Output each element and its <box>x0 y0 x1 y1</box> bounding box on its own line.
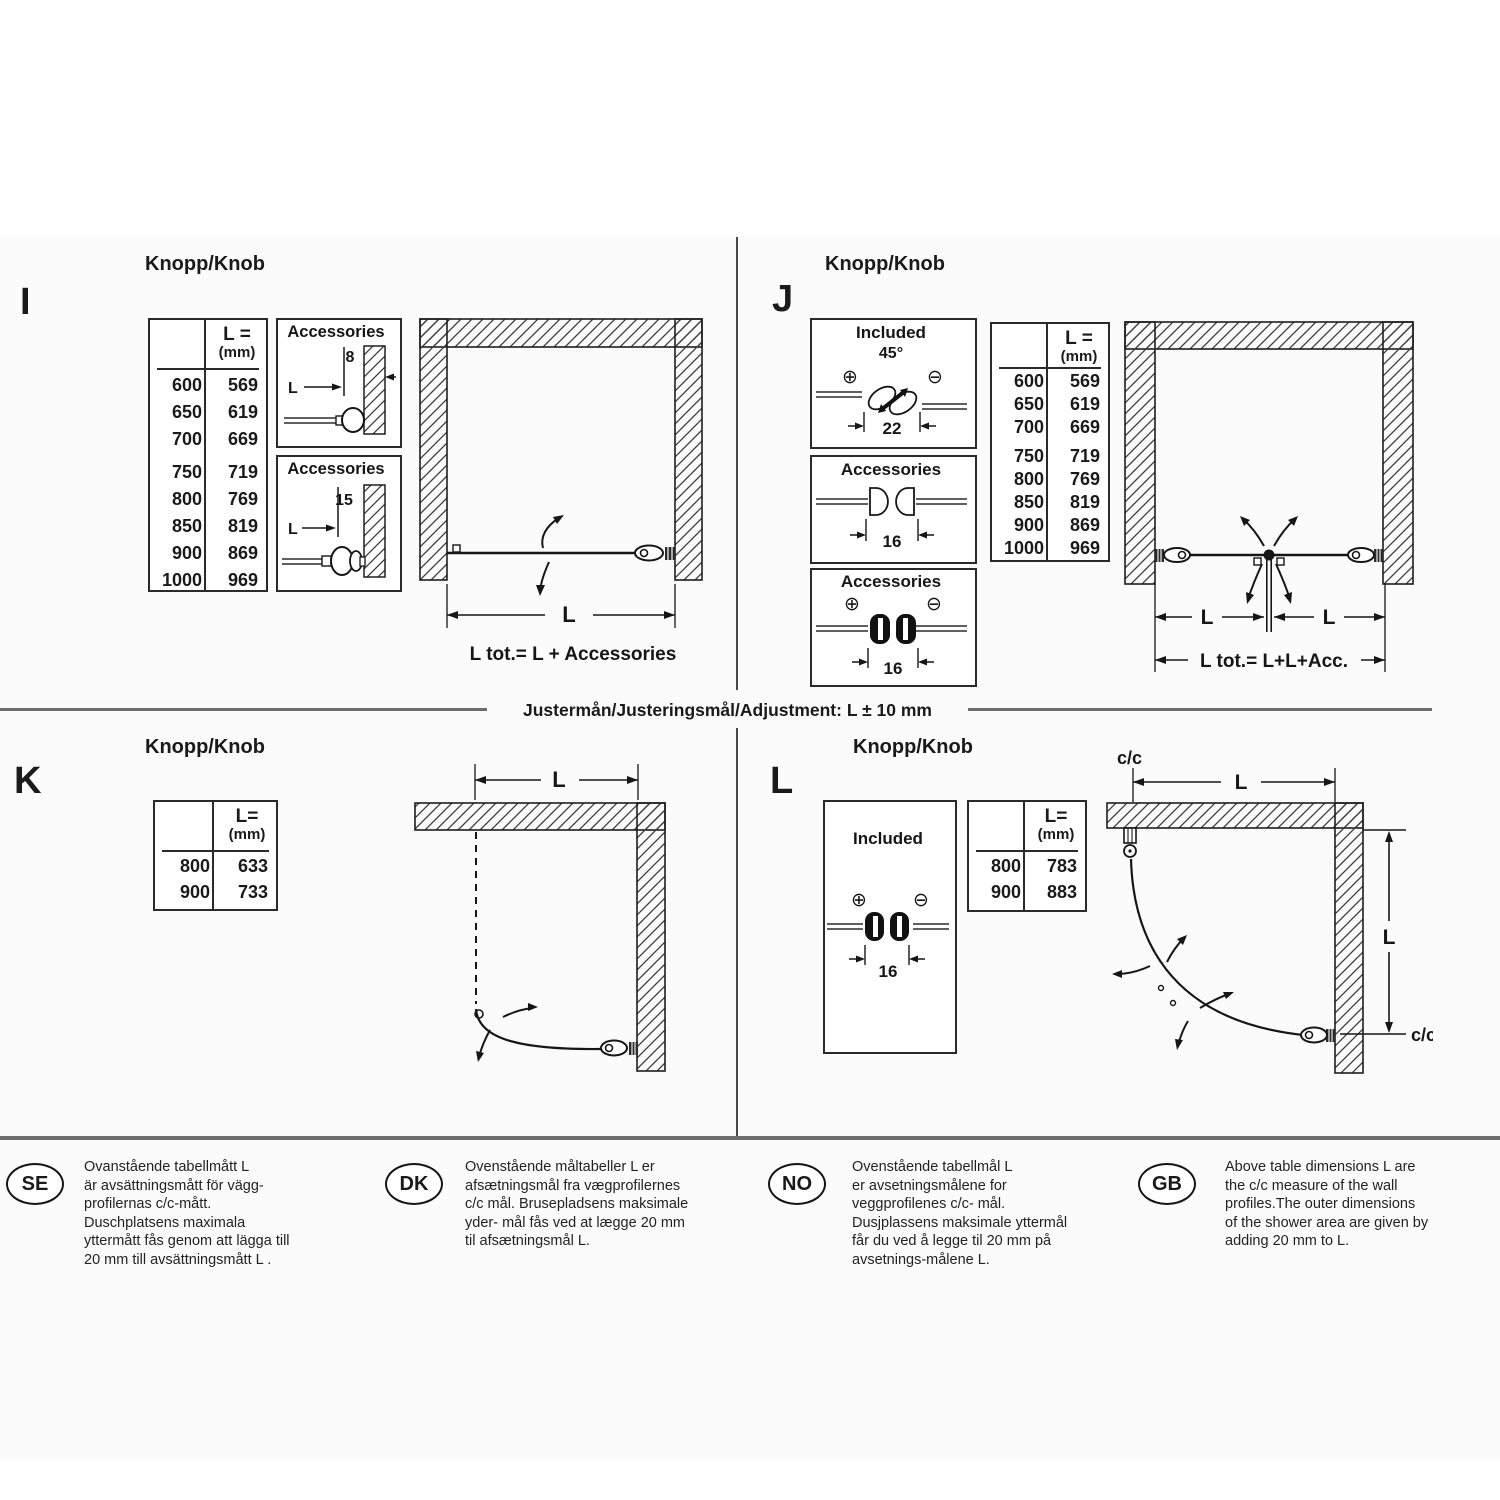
size-value: 750 <box>992 446 1049 467</box>
plus-icon: ⊕ <box>842 366 858 388</box>
note-dk: Ovenstående måltabeller L er afsætningsm… <box>465 1158 765 1251</box>
panel-joint <box>1171 1001 1176 1006</box>
note-gb: Above table dimensions L are the c/c mea… <box>1225 1158 1500 1251</box>
cc-label-bottom: c/c <box>1411 1025 1433 1045</box>
size-value: 1000 <box>992 538 1049 559</box>
section-j-heading: Knopp/Knob <box>825 253 945 276</box>
header-mm: (mm) <box>1027 827 1085 842</box>
accessory-box-knob-8: Accessories 8 L <box>276 318 402 448</box>
section-l-heading: Knopp/Knob <box>853 736 973 759</box>
size-value: 700 <box>992 417 1049 438</box>
accessory-seal-drawing: Accessories 16 <box>812 457 971 558</box>
section-l-letter: L <box>770 762 793 800</box>
door-stop <box>1254 558 1261 565</box>
minus-icon: ⊖ <box>926 593 942 615</box>
adjustment-rule-right <box>968 708 1432 711</box>
accessory-drawing-15: Accessories 15 L <box>278 457 396 586</box>
l-value: 769 <box>1049 469 1108 490</box>
magnet-slit <box>897 916 902 937</box>
note-line: Ovanstående tabellmått L <box>84 1158 384 1177</box>
arrowhead <box>1324 778 1335 786</box>
note-line: profiles.The outer dimensions <box>1225 1195 1500 1214</box>
seal-profile <box>896 488 914 515</box>
table-row: 1000969 <box>150 567 266 594</box>
size-value: 900 <box>992 515 1049 536</box>
door-stop <box>1277 558 1284 565</box>
arrowhead <box>664 611 675 619</box>
l-value: 819 <box>1049 492 1108 513</box>
adjustment-label: Justermån/Justeringsmål/Adjustment: L ± … <box>495 700 960 721</box>
section-i-heading: Knopp/Knob <box>145 253 265 276</box>
included-magnet-drawing: Included ⊕ ⊖ 16 <box>825 802 951 1048</box>
badge-code: GB <box>1152 1173 1182 1196</box>
size-value: 800 <box>155 856 215 877</box>
size-table-l: L= (mm) 800783 900883 <box>967 800 1087 912</box>
door-glass-curved <box>476 1009 601 1049</box>
size-value: 700 <box>150 429 207 450</box>
note-line: 20 mm till avsättningsmått L . <box>84 1251 384 1270</box>
note-line: c/c mål. Brusepladsens maksimale <box>465 1195 765 1214</box>
glass-edges <box>827 924 949 929</box>
wall-hatched <box>1125 322 1413 584</box>
diagram-double-door-niche: L L L tot.= L+L+Acc. <box>1118 300 1423 680</box>
arrowhead <box>1374 656 1385 664</box>
note-line: yder- mål fås ved at lægge 20 mm <box>465 1214 765 1233</box>
dim-label: L <box>1201 606 1214 629</box>
note-line: Ovenstående tabellmål L <box>852 1158 1152 1177</box>
l-value: 869 <box>207 543 266 564</box>
box-title: Included <box>856 323 926 342</box>
header-l: L= <box>1027 807 1085 827</box>
arrowhead <box>1223 992 1234 999</box>
arrowhead <box>909 956 918 963</box>
l-value: 783 <box>1026 856 1085 877</box>
note-line: veggprofilenes c/c- mål. <box>852 1195 1152 1214</box>
plus-icon: ⊕ <box>844 593 860 615</box>
table-body: 600569 650619 700669 750719 800769 85081… <box>150 372 266 594</box>
arrowhead <box>856 956 865 963</box>
dim-label: L <box>288 380 298 397</box>
arrowhead <box>1253 613 1264 621</box>
total-formula: L tot.= L + Accessories <box>470 644 677 665</box>
arrowhead <box>1155 656 1166 664</box>
l-value: 619 <box>207 402 266 423</box>
diagram-quadrant-door-corner: c/c L <box>1093 738 1433 1083</box>
diagram-single-door-niche: L L tot.= L + Accessories <box>403 300 718 670</box>
glass-edges <box>816 626 967 631</box>
size-value: 800 <box>969 856 1026 877</box>
l-value: 669 <box>1049 417 1108 438</box>
arrowhead <box>476 1051 484 1062</box>
magnet-slit <box>878 618 883 640</box>
plus-icon: ⊕ <box>851 889 867 911</box>
knob-icon <box>635 546 675 561</box>
language-badge-gb: GB <box>1138 1163 1196 1205</box>
table-row: 700669 <box>992 416 1108 439</box>
arrowhead <box>332 384 342 391</box>
width-value: 16 <box>884 659 903 678</box>
arrowhead <box>475 776 486 784</box>
box-title: Accessories <box>841 460 941 479</box>
knob-icon <box>1155 548 1190 562</box>
knob-icon <box>601 1041 638 1056</box>
table-row: 650619 <box>150 399 266 426</box>
note-line: får du ved å legge til 20 mm på <box>852 1232 1152 1251</box>
table-header: L= (mm) <box>218 807 276 842</box>
box-title: Included <box>853 829 923 848</box>
table-row: 900869 <box>150 540 266 567</box>
arrowhead <box>1284 592 1292 604</box>
table-header-rule <box>999 367 1101 369</box>
door-stop <box>453 545 460 552</box>
wall-hatched <box>420 319 702 580</box>
note-no: Ovenstående tabellmål L er avsetningsmål… <box>852 1158 1152 1269</box>
header-mm: (mm) <box>218 827 276 842</box>
arrowhead <box>326 525 336 532</box>
note-line: är avsättningsmått för vägg- <box>84 1177 384 1196</box>
table-row: 800783 <box>969 853 1085 879</box>
size-value: 850 <box>992 492 1049 513</box>
size-value: 900 <box>969 882 1026 903</box>
note-line: adding 20 mm to L. <box>1225 1232 1500 1251</box>
accessory-drawing-8: Accessories 8 L <box>278 320 396 442</box>
arrowhead <box>627 776 638 784</box>
note-se: Ovanstående tabellmått L är avsättningsm… <box>84 1158 384 1269</box>
size-value: 900 <box>150 543 207 564</box>
note-line: afsætningsmål fra vægprofilernes <box>465 1177 765 1196</box>
header-l: L = <box>208 325 266 345</box>
language-badge-no: NO <box>768 1163 826 1205</box>
table-row: 650619 <box>992 393 1108 416</box>
arrowhead <box>447 611 458 619</box>
l-value: 669 <box>207 429 266 450</box>
dim-label: L <box>288 521 298 538</box>
section-k-letter: K <box>14 762 41 800</box>
l-value: 769 <box>207 489 266 510</box>
wall-hatched <box>364 346 385 434</box>
table-header: L = (mm) <box>208 325 266 360</box>
size-table-j: L = (mm) 600569 650619 700669 750719 800… <box>990 322 1110 562</box>
size-value: 650 <box>150 402 207 423</box>
cc-label-top: c/c <box>1117 748 1142 768</box>
l-value: 819 <box>207 516 266 537</box>
note-line: yttermått fås genom att lägga till <box>84 1232 384 1251</box>
section-i-letter: I <box>20 283 31 321</box>
accessory-seal-box: Accessories 16 <box>810 455 977 564</box>
badge-code: DK <box>400 1173 429 1196</box>
arrowhead <box>1155 613 1166 621</box>
magnet-slit <box>873 916 878 937</box>
box-title: Accessories <box>287 460 384 478</box>
installation-instruction-sheet: I Knopp/Knob L = (mm) 600569 650619 7006… <box>0 0 1500 1500</box>
l-value: 733 <box>215 882 276 903</box>
table-header-rule <box>157 368 259 370</box>
arrowhead <box>857 532 866 539</box>
l-value: 969 <box>1049 538 1108 559</box>
dim-label: L <box>1383 926 1396 949</box>
arrowhead <box>528 1003 538 1011</box>
dim-label: L <box>1323 606 1336 629</box>
table-row: 900733 <box>155 879 276 905</box>
arrowhead <box>1133 778 1144 786</box>
arrowhead <box>553 515 564 524</box>
table-header-rule <box>162 850 269 852</box>
l-value: 569 <box>207 375 266 396</box>
diagram-pivot-door-corner: L <box>393 752 688 1087</box>
magnet-slit <box>903 618 908 640</box>
table-row: 750719 <box>150 459 266 486</box>
door-glass-curved <box>1131 859 1303 1035</box>
table-header-rule <box>976 850 1078 852</box>
accessory-magnet-drawing: Accessories ⊕ ⊖ 16 <box>812 570 971 681</box>
l-value: 619 <box>1049 394 1108 415</box>
section-k-heading: Knopp/Knob <box>145 736 265 759</box>
l-value: 633 <box>215 856 276 877</box>
accessory-magnet-box: Accessories ⊕ ⊖ 16 <box>810 568 977 687</box>
table-row: 900883 <box>969 879 1085 905</box>
included-45-box: Included 45° ⊕ ⊖ 22 <box>810 318 977 449</box>
panel-joint <box>1159 986 1164 991</box>
note-line: the c/c measure of the wall <box>1225 1177 1500 1196</box>
knob-stem <box>360 557 365 566</box>
table-body: 800633 900733 <box>155 853 276 905</box>
table-body: 800783 900883 <box>969 853 1085 905</box>
arrowhead <box>385 374 394 381</box>
wall-hatched <box>364 485 385 577</box>
dim-label: L <box>1235 771 1248 794</box>
glass-edges <box>816 499 967 504</box>
hinge-bracket <box>1124 828 1136 857</box>
badge-code: NO <box>782 1173 812 1196</box>
note-line: of the shower area are given by <box>1225 1214 1500 1233</box>
table-row: 600569 <box>992 370 1108 393</box>
total-formula: L tot.= L+L+Acc. <box>1200 651 1348 672</box>
size-table-i: L = (mm) 600569 650619 700669 750719 800… <box>148 318 268 592</box>
arrowhead <box>1374 613 1385 621</box>
badge-code: SE <box>22 1173 49 1196</box>
arrowhead <box>855 423 864 430</box>
box-title: Accessories <box>841 572 941 591</box>
table-row: 750719 <box>992 445 1108 468</box>
arrowhead <box>1274 613 1285 621</box>
accessory-box-knob-15: Accessories 15 L <box>276 455 402 592</box>
l-value: 569 <box>1049 371 1108 392</box>
size-value: 600 <box>150 375 207 396</box>
header-l: L= <box>218 807 276 827</box>
dim-label: L <box>562 602 575 627</box>
header-mm: (mm) <box>208 345 266 360</box>
width-value: 22 <box>883 419 902 438</box>
arrowhead <box>1175 1039 1183 1050</box>
table-row: 800633 <box>155 853 276 879</box>
l-value: 883 <box>1026 882 1085 903</box>
minus-icon: ⊖ <box>913 889 929 911</box>
footer-rule <box>0 1136 1500 1140</box>
table-header: L = (mm) <box>1050 329 1108 364</box>
arrowhead <box>536 585 545 596</box>
table-row: 1000969 <box>992 537 1108 560</box>
table-body: 600569 650619 700669 750719 800769 85081… <box>992 370 1108 560</box>
arrowhead <box>920 423 929 430</box>
note-line: er avsetningsmålene for <box>852 1177 1152 1196</box>
adjustment-rule-left <box>0 708 487 711</box>
table-row: 800769 <box>992 468 1108 491</box>
note-line: til afsætningsmål L. <box>465 1232 765 1251</box>
note-line: Dusjplassens maksimale yttermål <box>852 1214 1152 1233</box>
table-row: 600569 <box>150 372 266 399</box>
note-line: profilernas c/c-mått. <box>84 1195 384 1214</box>
l-value: 969 <box>207 570 266 591</box>
table-row: 850819 <box>992 491 1108 514</box>
quadrant-divider-top <box>736 237 738 690</box>
box-title: Accessories <box>287 323 384 341</box>
angle-label: 45° <box>879 345 903 362</box>
wall-hatched <box>415 803 665 1071</box>
note-line: avsetnings-målene L. <box>852 1251 1152 1270</box>
arrowhead <box>1112 970 1122 978</box>
arrowhead <box>1385 1022 1393 1033</box>
arrowhead <box>918 532 927 539</box>
knob-icon <box>1348 548 1383 562</box>
language-badge-dk: DK <box>385 1163 443 1205</box>
minus-icon: ⊖ <box>927 366 943 388</box>
dim-label: L <box>552 767 565 792</box>
size-value: 850 <box>150 516 207 537</box>
l-value: 719 <box>1049 446 1108 467</box>
width-value: 16 <box>883 532 902 551</box>
arrowhead <box>1385 831 1393 842</box>
size-value: 900 <box>155 882 215 903</box>
seal-profile <box>870 488 888 515</box>
l-value: 719 <box>207 462 266 483</box>
knob-icon <box>1301 1028 1335 1043</box>
size-value: 750 <box>150 462 207 483</box>
size-value: 1000 <box>150 570 207 591</box>
header-mm: (mm) <box>1050 349 1108 364</box>
arrowhead <box>918 659 927 666</box>
l-value: 869 <box>1049 515 1108 536</box>
swing-arrows <box>1117 938 1229 1045</box>
included-magnet-box: Included ⊕ ⊖ 16 <box>823 800 957 1054</box>
arrowhead <box>859 659 868 666</box>
quadrant-divider-bottom <box>736 728 738 1136</box>
table-row: 800769 <box>150 486 266 513</box>
arrowhead <box>1246 592 1254 604</box>
size-value: 600 <box>992 371 1049 392</box>
offset-value: 8 <box>346 349 355 366</box>
note-line: Ovenstående måltabeller L er <box>465 1158 765 1177</box>
note-line: Above table dimensions L are <box>1225 1158 1500 1177</box>
note-line: Duschplatsens maximala <box>84 1214 384 1233</box>
header-l: L = <box>1050 329 1108 349</box>
center-pivot <box>1264 550 1275 561</box>
table-row: 700669 <box>150 426 266 453</box>
table-row: 850819 <box>150 513 266 540</box>
language-badge-se: SE <box>6 1163 64 1205</box>
knob-icon <box>342 408 364 432</box>
section-j-letter: J <box>772 280 793 318</box>
included-45-drawing: Included 45° ⊕ ⊖ 22 <box>812 320 971 443</box>
table-row: 900869 <box>992 514 1108 537</box>
size-value: 800 <box>992 469 1049 490</box>
table-header: L= (mm) <box>1027 807 1085 842</box>
knob-clamp <box>322 556 331 566</box>
size-table-k: L= (mm) 800633 900733 <box>153 800 278 911</box>
size-value: 800 <box>150 489 207 510</box>
size-value: 650 <box>992 394 1049 415</box>
width-value: 16 <box>879 962 898 981</box>
